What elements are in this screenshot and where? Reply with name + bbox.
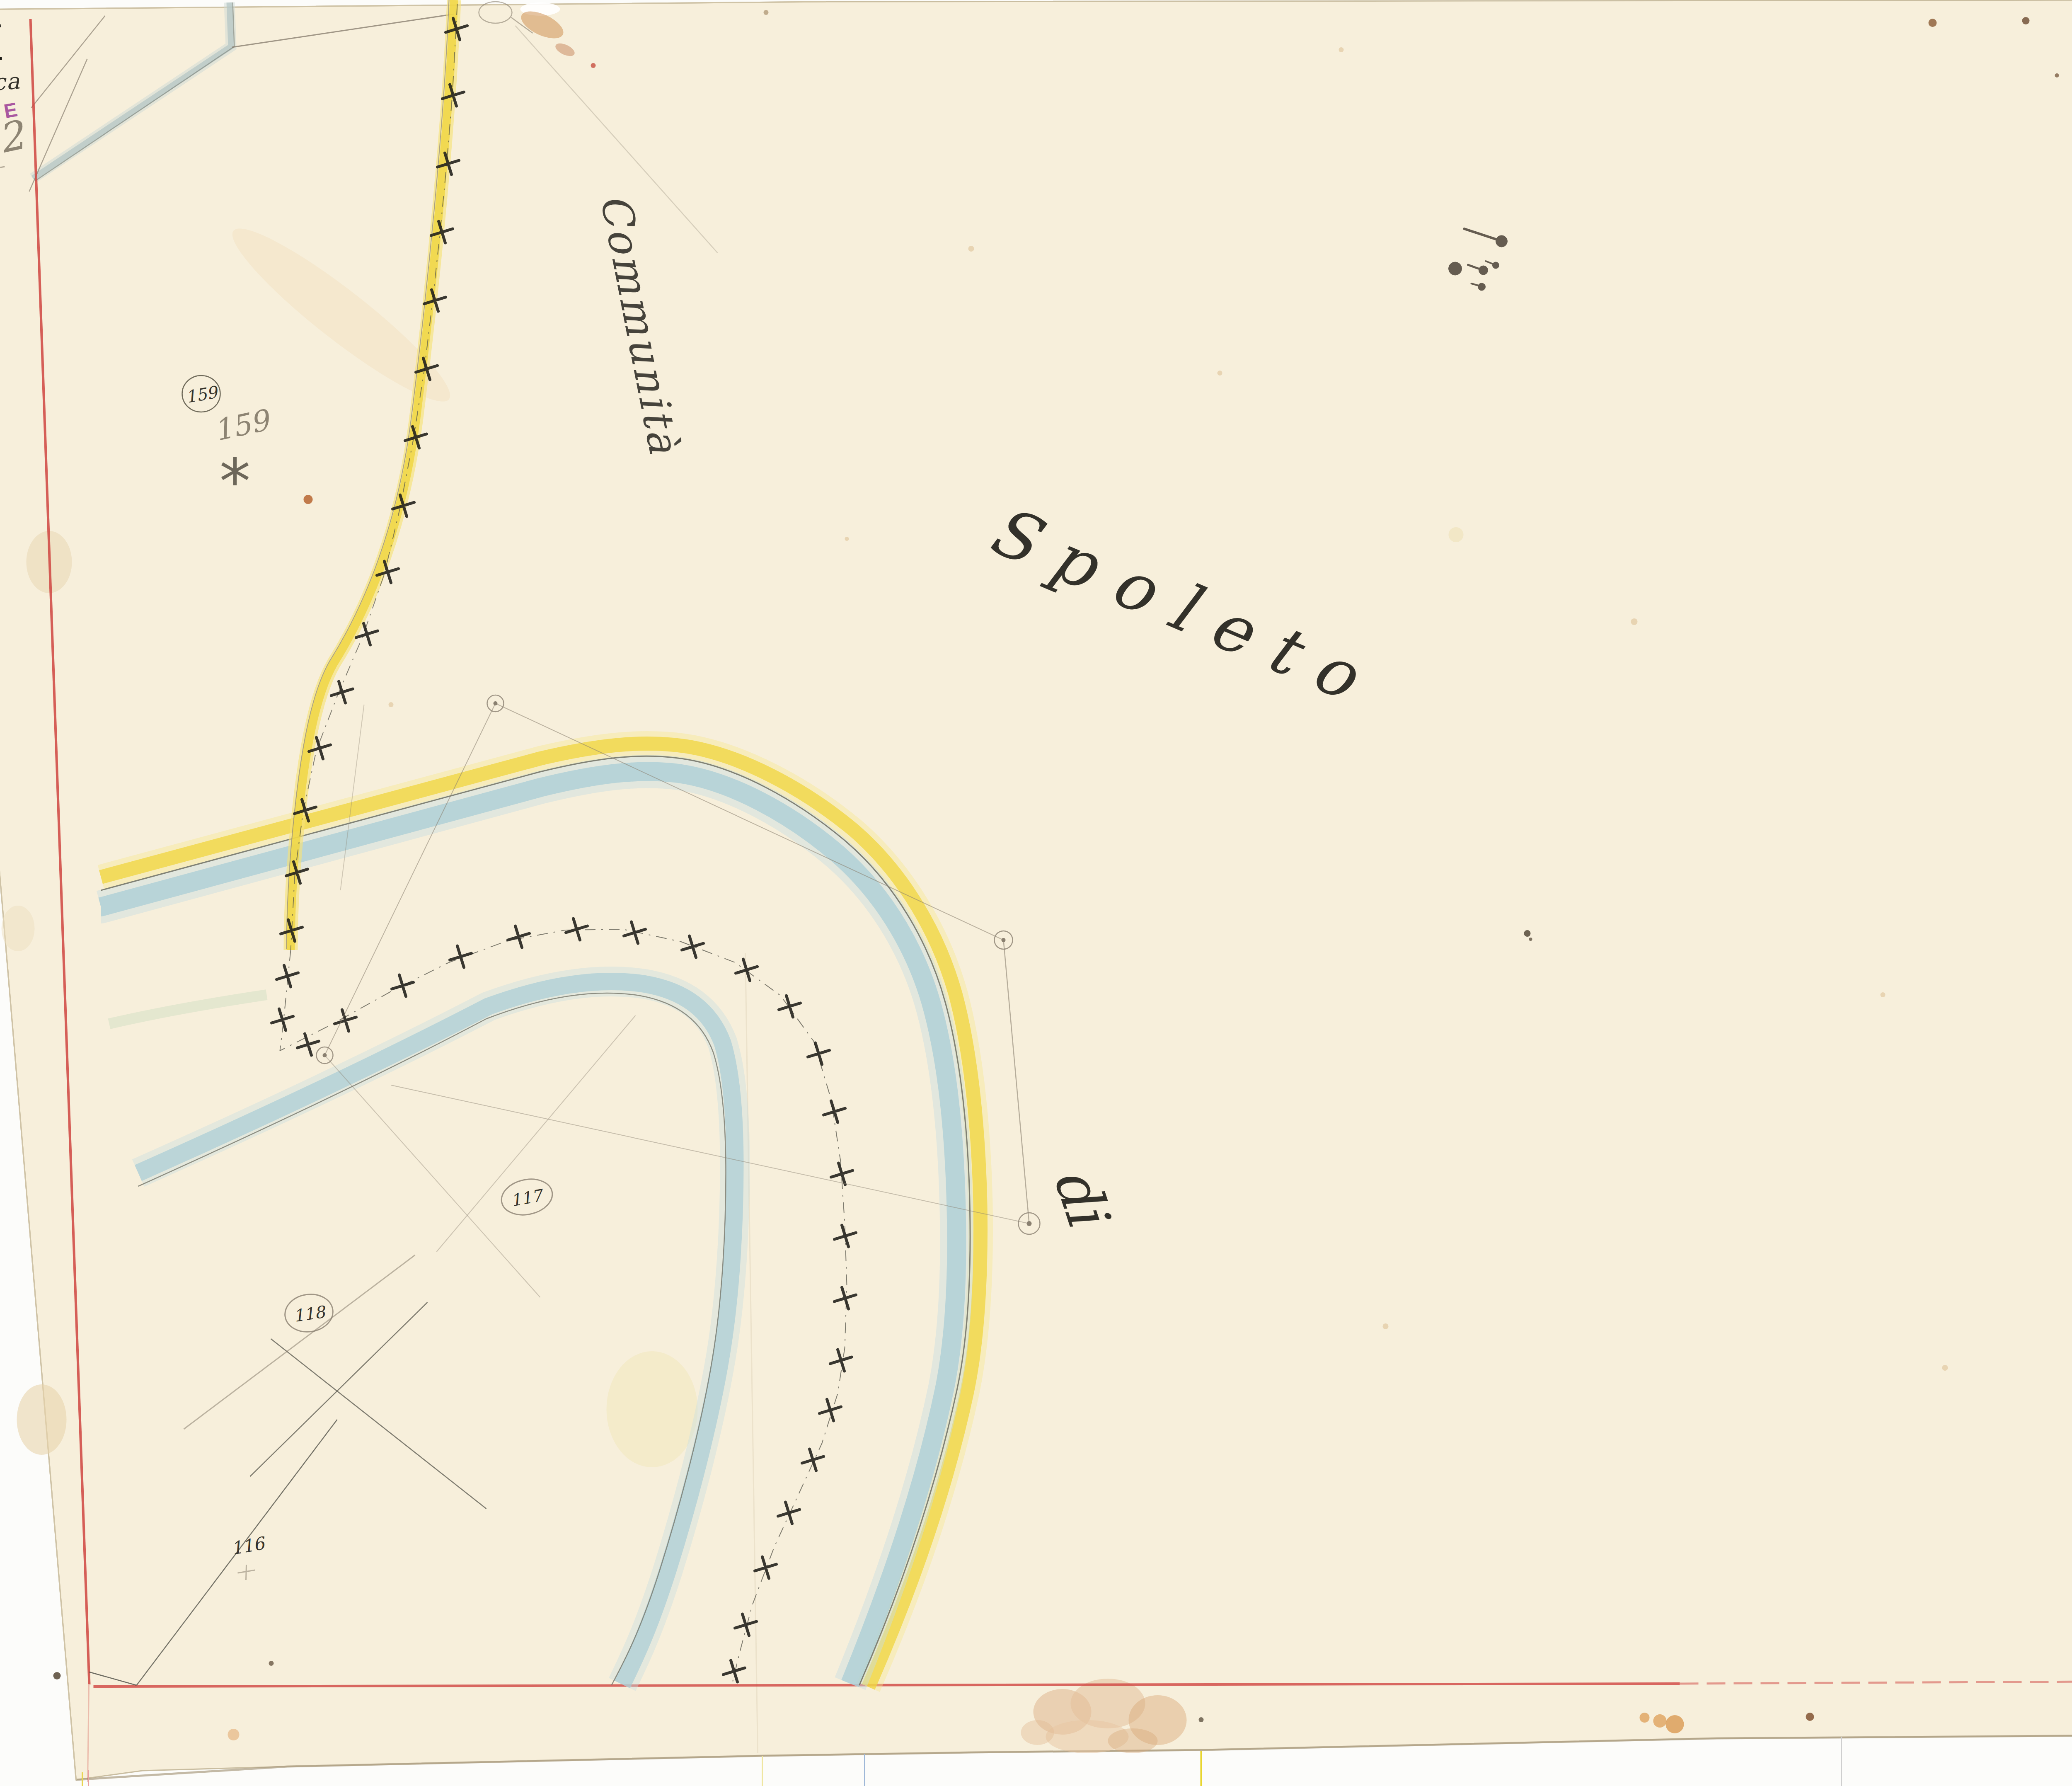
survey-point-dot (1027, 1221, 1032, 1226)
cadastral-map-scan: 7 XI 15 Baucca ORTE fog 2 159 159 * Comm… (0, 0, 2072, 1786)
survey-point-dot (494, 701, 498, 705)
survey-point-dot (323, 1053, 327, 1057)
parcel-159-star: * (220, 446, 251, 518)
survey-point-dot (1002, 938, 1006, 942)
